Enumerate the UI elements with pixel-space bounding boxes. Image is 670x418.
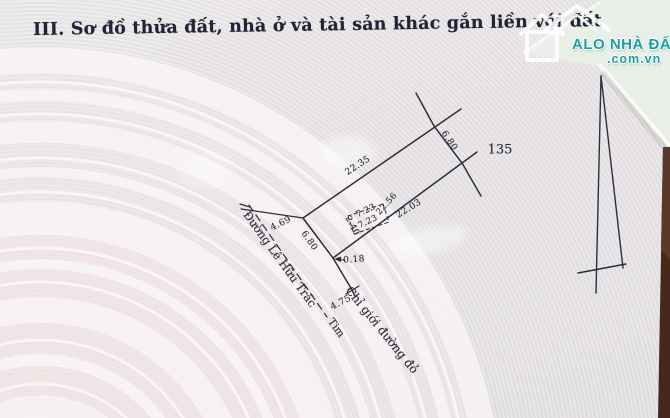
- measure-corner-offset: 0.18: [343, 254, 365, 265]
- certificate-page: III. Sơ đồ thửa đất, nhà ở và tài sản kh…: [0, 0, 670, 418]
- table-wood-light: [661, 147, 670, 260]
- north-arrow: [578, 76, 626, 293]
- parcel-number: 135: [488, 143, 513, 158]
- watermark-logo: [515, 0, 670, 70]
